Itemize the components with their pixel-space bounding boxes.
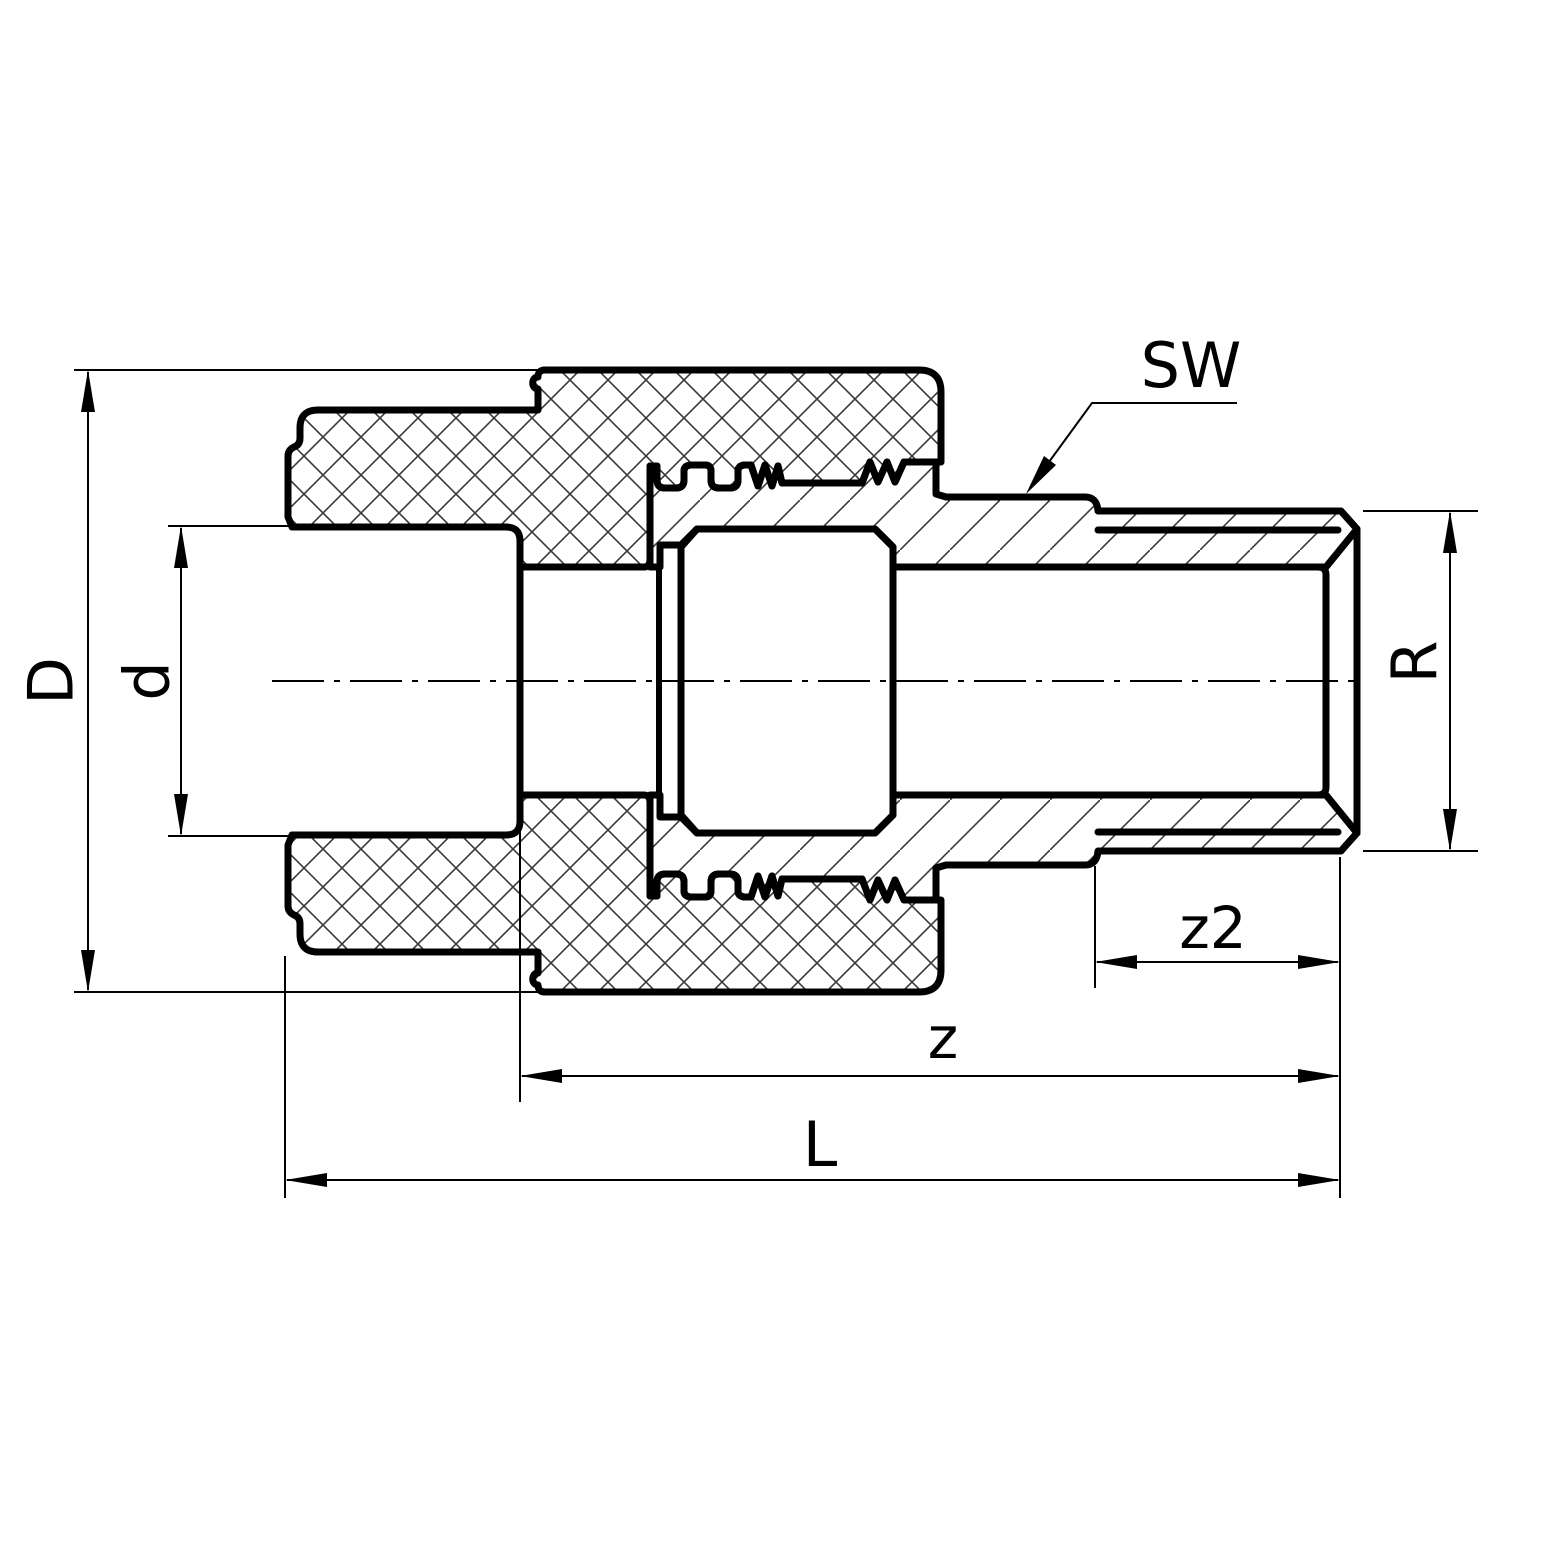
arrow-d-bottom — [174, 794, 188, 836]
label-thread-length: z2 — [1179, 894, 1246, 962]
label-wrench-size: SW — [1141, 329, 1242, 402]
technical-drawing-canvas: D d R SW z2 z L — [0, 0, 1550, 1550]
arrow-R-bottom — [1443, 809, 1457, 851]
label-thread-designation: R — [1378, 640, 1451, 683]
arrow-z2-left — [1095, 955, 1137, 969]
arrow-L-left — [285, 1173, 327, 1187]
bore-end-line — [1318, 567, 1326, 681]
arrow-z-right — [1298, 1069, 1340, 1083]
drawing-page: D d R SW z2 z L — [0, 0, 1550, 1550]
leader-SW — [1030, 403, 1237, 488]
arrow-d-top — [174, 526, 188, 568]
label-outer-diameter: D — [14, 657, 87, 705]
arrow-z2-right — [1298, 955, 1340, 969]
arrow-L-right — [1298, 1173, 1340, 1187]
arrow-R-top — [1443, 511, 1457, 553]
label-overall-length: L — [803, 1108, 838, 1181]
arrow-D-top — [81, 370, 95, 412]
label-socket-diameter: d — [110, 661, 183, 700]
label-inner-length: z — [928, 1004, 958, 1072]
arrow-z-left — [520, 1069, 562, 1083]
arrow-D-bottom — [81, 950, 95, 992]
arrow-SW-leader — [1026, 456, 1056, 494]
